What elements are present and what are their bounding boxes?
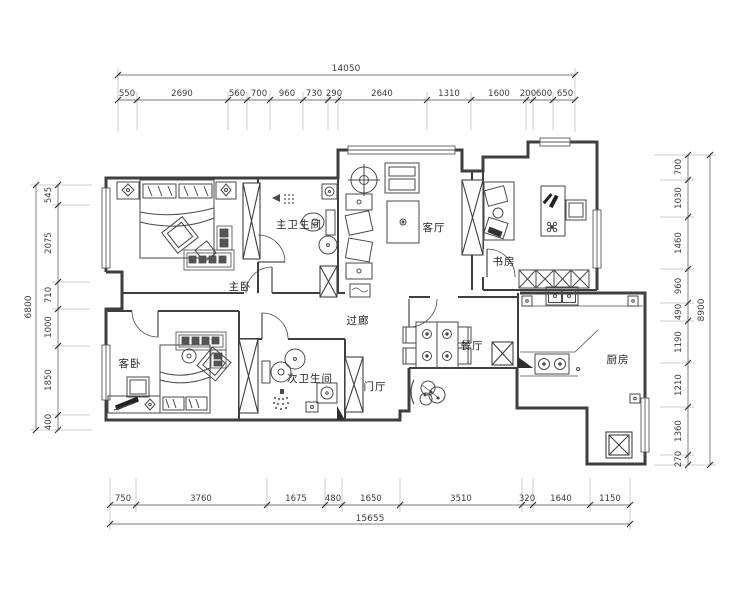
daybed-study	[484, 182, 514, 240]
dim-bottom-total: 15655	[356, 514, 385, 524]
dimension-chain-top: 14050 550 2690 560 700 960 730 290 2640 …	[115, 64, 578, 103]
furniture-dining	[403, 322, 471, 405]
dim-top-seg-8: 1310	[438, 89, 460, 99]
dim-bottom-seg-7: 1640	[550, 494, 572, 504]
dim-left-seg-1: 2075	[44, 232, 54, 254]
column-kitchen	[606, 432, 632, 458]
armchair-living	[385, 163, 419, 193]
dim-bottom-seg-2: 1675	[285, 494, 307, 504]
furniture-study	[484, 182, 589, 288]
shower-symbol	[273, 389, 289, 410]
tv-cabinet-guest	[108, 396, 160, 413]
switch-box-right	[628, 296, 638, 306]
armchair-master	[162, 217, 216, 262]
dim-bottom-seg-4: 1650	[360, 494, 382, 504]
dim-top-seg-10: 200	[520, 89, 536, 99]
label-master-bedroom: 主卧	[229, 280, 252, 293]
dim-top-seg-6: 290	[326, 89, 342, 99]
column-foyer	[345, 357, 363, 412]
basin-second	[285, 349, 305, 369]
furniture-living	[345, 163, 419, 297]
dim-right-seg-4: 490	[674, 304, 684, 320]
side-table-study	[566, 200, 586, 220]
dim-left-seg-2: 710	[44, 287, 54, 303]
switch-box-lower	[630, 394, 640, 403]
rug-guest	[176, 332, 226, 368]
plant	[411, 380, 445, 405]
dim-bottom-seg-0: 750	[115, 494, 131, 504]
dim-bottom-seg-8: 1150	[599, 494, 621, 504]
dim-top-seg-5: 730	[306, 89, 322, 99]
label-foyer: 门厅	[364, 380, 387, 393]
dim-top-total: 14050	[332, 64, 361, 74]
ceiling-lamp	[348, 164, 380, 196]
washer-master	[322, 184, 337, 199]
dim-top-seg-11: 600	[536, 89, 552, 99]
window-study-right	[593, 210, 601, 268]
window-study-top	[540, 138, 570, 146]
kitchen-stove	[535, 354, 580, 374]
washer-second	[317, 383, 337, 403]
dim-right-seg-0: 700	[674, 159, 684, 175]
dim-right-seg-8: 270	[674, 451, 684, 467]
label-study: 书房	[493, 255, 516, 268]
dim-right-seg-6: 1210	[674, 374, 684, 396]
dim-left-seg-4: 1850	[44, 369, 54, 391]
label-kitchen: 厨房	[607, 353, 630, 366]
sofa-living	[345, 194, 373, 297]
furniture-guest-bedroom	[108, 332, 231, 413]
kitchen-sink	[546, 287, 578, 305]
dim-bottom-seg-1: 3760	[190, 494, 212, 504]
dim-top-seg-2: 560	[229, 89, 245, 99]
dim-bottom-seg-6: 320	[519, 494, 535, 504]
dim-left-seg-5: 400	[44, 414, 54, 430]
rug-master	[184, 226, 234, 270]
dim-top-seg-9: 1600	[488, 89, 510, 99]
dim-right-seg-5: 1190	[674, 331, 684, 353]
nightstand-lamp-left	[117, 182, 139, 199]
window-living-top	[348, 146, 455, 154]
floor-plan-canvas: 14050 550 2690 560 700 960 730 290 2640 …	[0, 0, 740, 600]
door-guest-bedroom	[132, 311, 158, 337]
floor-drain	[306, 402, 318, 412]
dining-table	[416, 322, 458, 368]
door-master-bath	[258, 235, 285, 262]
furniture-kitchen	[520, 287, 643, 403]
label-corridor: 过廊	[347, 314, 370, 327]
dim-bottom-seg-3: 480	[325, 494, 341, 504]
dim-right-seg-1: 1030	[674, 187, 684, 209]
window-master-left	[102, 188, 110, 268]
stool-guest	[127, 377, 149, 397]
table-guest	[182, 349, 196, 363]
switch-box-left	[522, 296, 532, 306]
column-master-wardrobe	[243, 183, 260, 259]
dim-right-total: 8900	[697, 298, 707, 321]
door-second-bath	[262, 313, 288, 339]
label-dining-room: 餐厅	[461, 339, 484, 352]
dim-left-seg-0: 545	[44, 187, 54, 203]
window-kitchen-right	[641, 398, 649, 452]
label-guest-bedroom: 客卧	[119, 357, 142, 370]
column-master-bath	[320, 266, 337, 297]
basin-master	[319, 236, 337, 254]
dim-right-seg-3: 960	[674, 278, 684, 294]
label-master-bath: 主卫生间	[276, 218, 322, 231]
floor-plan-page: 14050 550 2690 560 700 960 730 290 2640 …	[0, 0, 740, 600]
dim-top-seg-7: 2640	[371, 89, 393, 99]
column-dining	[492, 342, 513, 365]
bed-guest	[160, 345, 210, 413]
dim-top-seg-3: 700	[251, 89, 267, 99]
dim-top-seg-12: 650	[557, 89, 573, 99]
column-guest-bath	[239, 339, 258, 413]
dimension-chain-right: 700 1030 1460 960 490 1190 1210 1360 270…	[674, 152, 713, 468]
dim-top-seg-1: 2690	[171, 89, 193, 99]
label-living-room: 客厅	[423, 221, 446, 234]
dim-left-seg-3: 1000	[44, 316, 54, 338]
desk-study	[541, 186, 565, 236]
extension-lines	[30, 68, 716, 530]
door-dining	[409, 299, 437, 327]
spray-symbol	[272, 194, 294, 204]
column-living-study	[462, 180, 483, 255]
dim-top-seg-0: 550	[119, 89, 135, 99]
dim-right-seg-2: 1460	[674, 232, 684, 254]
furniture-master-bedroom	[117, 180, 236, 270]
dimension-chain-bottom: 750 3760 1675 480 1650 3510 320 1640 115…	[107, 494, 633, 527]
dim-top-seg-4: 960	[279, 89, 295, 99]
dim-left-total: 6800	[24, 295, 34, 318]
window-guest-left	[102, 345, 110, 400]
dim-right-seg-7: 1360	[674, 420, 684, 442]
nightstand-lamp-right	[216, 182, 236, 199]
coffee-table	[387, 201, 419, 243]
dimension-chain-left: 545 2075 710 1000 1850 400 6800	[24, 182, 61, 433]
label-second-bath: 次卫生间	[287, 372, 333, 385]
dim-bottom-seg-5: 3510	[450, 494, 472, 504]
wardrobe-study	[519, 270, 589, 288]
